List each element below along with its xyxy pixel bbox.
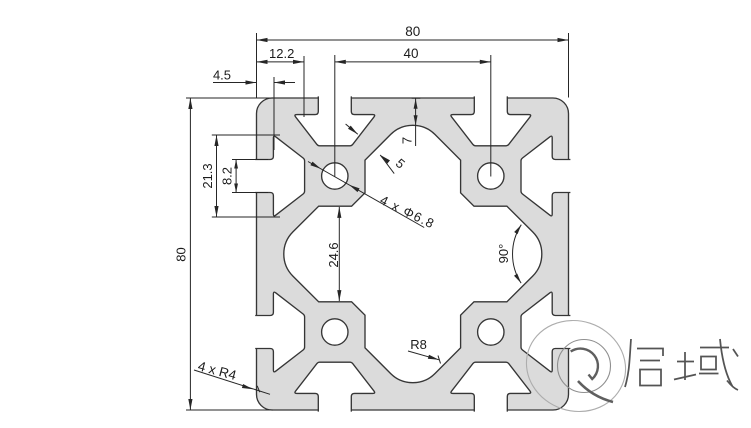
svg-text:80: 80 [174, 247, 189, 261]
svg-text:90°: 90° [496, 244, 511, 264]
svg-text:4.5: 4.5 [213, 68, 231, 83]
svg-text:40: 40 [403, 46, 418, 61]
svg-text:8.2: 8.2 [220, 167, 235, 185]
svg-text:7: 7 [400, 137, 415, 144]
svg-text:21.3: 21.3 [200, 163, 215, 188]
svg-text:24.6: 24.6 [326, 242, 341, 267]
svg-text:80: 80 [405, 24, 420, 39]
svg-text:12.2: 12.2 [269, 46, 294, 61]
svg-text:R8: R8 [410, 337, 427, 352]
